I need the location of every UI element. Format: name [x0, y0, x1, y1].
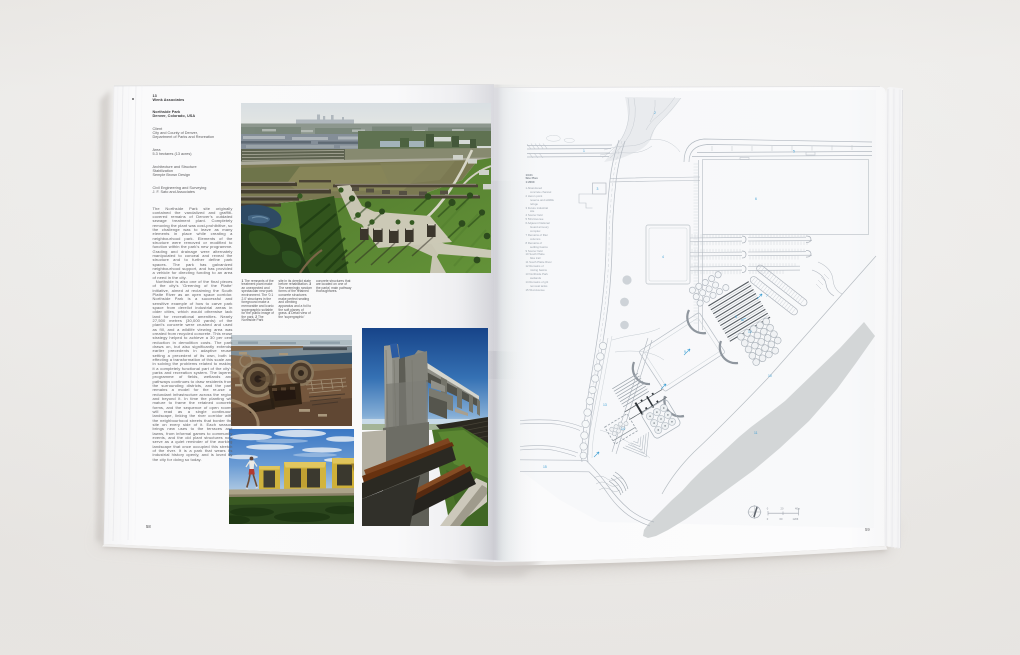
svg-text:11: 11	[754, 431, 758, 435]
svg-text:10: 10	[768, 374, 772, 378]
svg-text:8: 8	[735, 315, 737, 319]
svg-text:2: 2	[654, 111, 656, 115]
svg-text:13: 13	[603, 403, 607, 407]
svg-text:5: 5	[793, 150, 795, 154]
svg-text:120ft: 120ft	[793, 517, 799, 521]
svg-text:15: 15	[543, 465, 547, 469]
svg-text:14: 14	[621, 427, 625, 431]
svg-text:12: 12	[748, 330, 752, 334]
svg-text:40m: 40m	[795, 507, 800, 511]
svg-text:4: 4	[662, 255, 664, 259]
svg-text:6: 6	[755, 197, 757, 201]
svg-text:3: 3	[597, 187, 599, 191]
svg-text:1: 1	[583, 149, 585, 153]
svg-text:7: 7	[766, 294, 768, 298]
